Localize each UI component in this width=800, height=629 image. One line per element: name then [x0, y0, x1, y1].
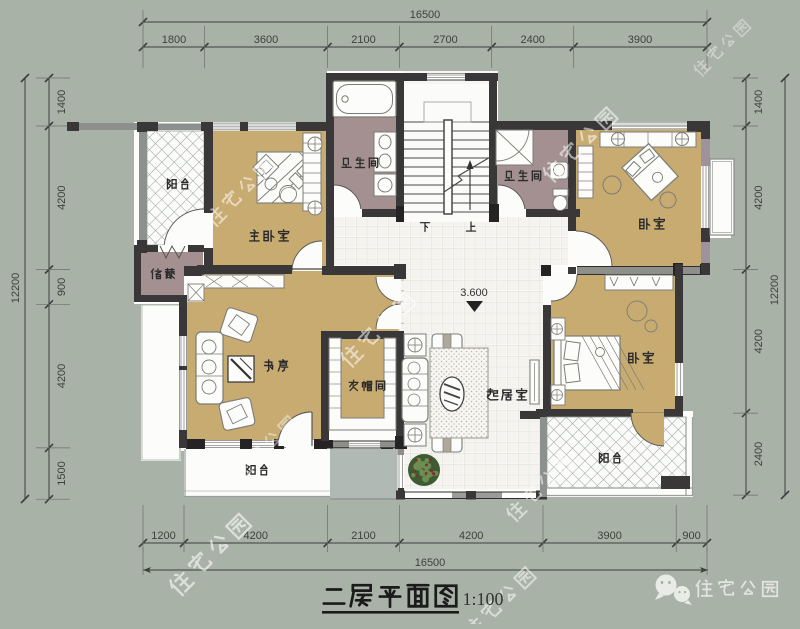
svg-text:2400: 2400 — [520, 34, 544, 46]
svg-text:4200: 4200 — [56, 185, 68, 209]
svg-text:2700: 2700 — [433, 34, 457, 46]
svg-text:2400: 2400 — [753, 442, 765, 466]
svg-text:900: 900 — [682, 530, 700, 542]
svg-text:1400: 1400 — [56, 90, 68, 114]
svg-text:3.600: 3.600 — [460, 287, 488, 299]
svg-text:4200: 4200 — [459, 530, 483, 542]
svg-text:12200: 12200 — [10, 273, 22, 304]
svg-text:1400: 1400 — [753, 90, 765, 114]
svg-text:2100: 2100 — [351, 530, 375, 542]
svg-text:16500: 16500 — [410, 9, 441, 21]
svg-text:1500: 1500 — [56, 461, 68, 485]
svg-text:2100: 2100 — [351, 34, 375, 46]
svg-text:900: 900 — [56, 278, 68, 296]
svg-text:1200: 1200 — [151, 530, 175, 542]
svg-text:4200: 4200 — [753, 329, 765, 353]
svg-text:4200: 4200 — [753, 185, 765, 209]
svg-text:1800: 1800 — [162, 34, 186, 46]
svg-text:3900: 3900 — [628, 34, 652, 46]
svg-text:16500: 16500 — [415, 557, 446, 569]
svg-text:4200: 4200 — [56, 364, 68, 388]
svg-text:3900: 3900 — [597, 530, 621, 542]
svg-text:12200: 12200 — [769, 275, 781, 306]
svg-text:4200: 4200 — [244, 530, 268, 542]
svg-text:1:100: 1:100 — [462, 589, 503, 609]
svg-text:3600: 3600 — [254, 34, 278, 46]
